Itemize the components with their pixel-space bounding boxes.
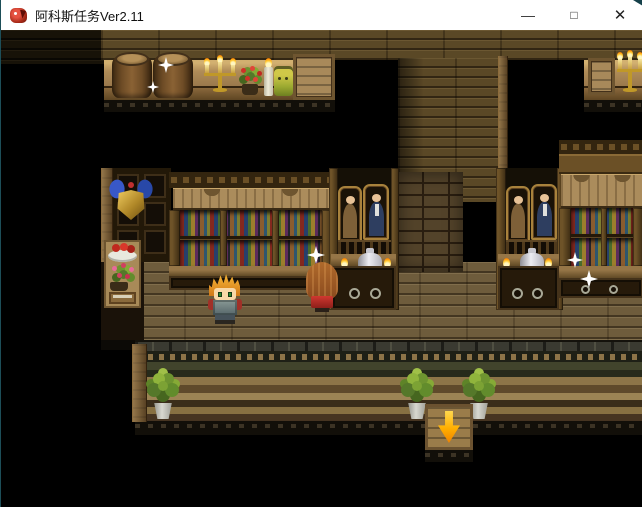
portrait-collar (375, 204, 379, 216)
exit-arrow-icon[interactable] (438, 411, 460, 443)
shield-ornament-icon (107, 180, 155, 222)
candle-stick (628, 57, 632, 69)
bookshelf-pillar (633, 208, 642, 266)
candelabra-stem (628, 72, 632, 88)
portrait-alcove-center (329, 168, 399, 310)
cabinet-front (498, 266, 559, 310)
bookshelf-right (559, 140, 642, 298)
portrait-head (372, 194, 381, 202)
window-title: 阿科斯任务Ver2.11 (35, 6, 144, 25)
candelabra-base (213, 88, 227, 92)
ring-handle-icon (609, 285, 618, 294)
wall-panel (144, 230, 166, 254)
wall-shelf-left (104, 48, 335, 144)
platform-base-shadow (135, 421, 642, 435)
npc-hair (306, 262, 338, 300)
book-row (180, 210, 322, 236)
bookshelf-top-board (559, 140, 642, 154)
exit-platform-shadow (425, 450, 473, 462)
game-window: 阿科斯任务Ver2.11 — □ ✕ (0, 0, 642, 507)
portrait-head (514, 196, 523, 204)
ring-handle-icon (370, 288, 381, 299)
candle-stick (205, 65, 209, 73)
crate-icon (588, 58, 615, 95)
bookshelf-pillar (559, 208, 571, 266)
jar-dot (285, 77, 288, 80)
flower-pot (242, 84, 258, 95)
wall-shelf-right (584, 48, 642, 144)
plant-pot (407, 403, 427, 419)
plant-foliage (412, 381, 422, 391)
flower-blooms (241, 68, 246, 73)
ceiling-planks-dark (1, 30, 104, 64)
bookshelf-base-counter (559, 266, 642, 278)
jar-icon (274, 66, 293, 96)
npc-hair-highlight (306, 262, 338, 300)
exit-platform[interactable] (425, 404, 473, 450)
plant-foliage (158, 381, 168, 391)
cabinet-front (331, 266, 396, 310)
bookshelf-pillar (220, 210, 227, 266)
app-icon (10, 8, 27, 23)
hero-eye (218, 292, 222, 297)
molding-band (146, 362, 642, 377)
minimize-button[interactable]: — (506, 0, 550, 30)
flower-blooms (112, 266, 117, 271)
npc-girl[interactable] (305, 262, 339, 312)
barrel-top (156, 52, 190, 66)
plant-pot (153, 403, 173, 419)
portrait-alcove-right (496, 168, 563, 310)
app-icon-eye (14, 12, 17, 15)
hero-character[interactable] (207, 272, 243, 324)
portrait-figure (343, 204, 357, 238)
platform-steps (146, 377, 642, 421)
candle-stick (618, 59, 622, 69)
bookshelf-pillar (272, 210, 279, 266)
portrait-painting (531, 184, 557, 240)
candelabra-icon (203, 58, 237, 96)
fruit-apples (112, 244, 120, 252)
shield-body (117, 190, 145, 220)
plant-foliage (474, 381, 484, 391)
ring-handle-icon (512, 288, 523, 299)
flower-pot-icon (237, 66, 263, 96)
ring-handle-icon (532, 288, 543, 299)
portrait-painting (506, 186, 530, 242)
flower-pot (110, 282, 128, 291)
candle-body (264, 67, 273, 96)
portrait-figure (537, 202, 552, 236)
close-button[interactable]: ✕ (597, 0, 642, 30)
crest-gem (128, 182, 134, 188)
portrait-collar (543, 204, 547, 216)
ring-handle-icon (349, 288, 360, 299)
hero-boots (215, 320, 235, 324)
portrait-painting (363, 184, 389, 240)
bookshelf-base-front (559, 278, 642, 298)
flower-leaves (246, 72, 255, 81)
bookshelf-cornice (173, 188, 329, 210)
dentil-molding (146, 351, 642, 362)
bookshelf-pillar (601, 208, 607, 266)
portrait-head (346, 196, 355, 204)
candelabra-icon (617, 52, 642, 96)
candle-stick (218, 62, 222, 73)
candle-stick (231, 65, 235, 73)
book-row (180, 240, 322, 266)
app-icon-wing (20, 10, 26, 19)
candelabra-base (623, 88, 637, 92)
barrel-top (115, 52, 149, 66)
left-wall-column (101, 168, 171, 350)
shelf-shadow (584, 100, 642, 112)
bookshelf-top-board (169, 172, 333, 188)
potted-plant-icon (145, 371, 181, 427)
npc-dress (311, 296, 333, 308)
brick-wall (398, 172, 463, 272)
portrait-figure (511, 204, 525, 238)
book-pages (113, 295, 132, 298)
side-hutch (104, 240, 141, 308)
portrait-painting (338, 186, 362, 242)
candle-stick (638, 59, 642, 69)
flower-leaves (119, 270, 128, 279)
maximize-button[interactable]: □ (552, 0, 596, 30)
bookshelf-frieze (559, 154, 642, 174)
candle-icon (263, 58, 274, 98)
candelabra-stem (218, 76, 222, 88)
bookshelf-pillar (169, 210, 180, 266)
portrait-head (540, 194, 549, 202)
book-icon (109, 292, 136, 304)
hero-armor (213, 300, 237, 315)
shelf-shadow (104, 100, 335, 112)
bookshelf-cornice (561, 174, 642, 208)
portrait-figure (369, 202, 384, 236)
game-viewport[interactable] (1, 30, 642, 507)
hero-eye (228, 292, 232, 297)
npc-feet (315, 308, 329, 312)
fruit-plate-icon (108, 250, 137, 262)
crate-icon (293, 54, 335, 100)
stone-ledge (135, 340, 642, 351)
jar-dot (278, 77, 281, 80)
